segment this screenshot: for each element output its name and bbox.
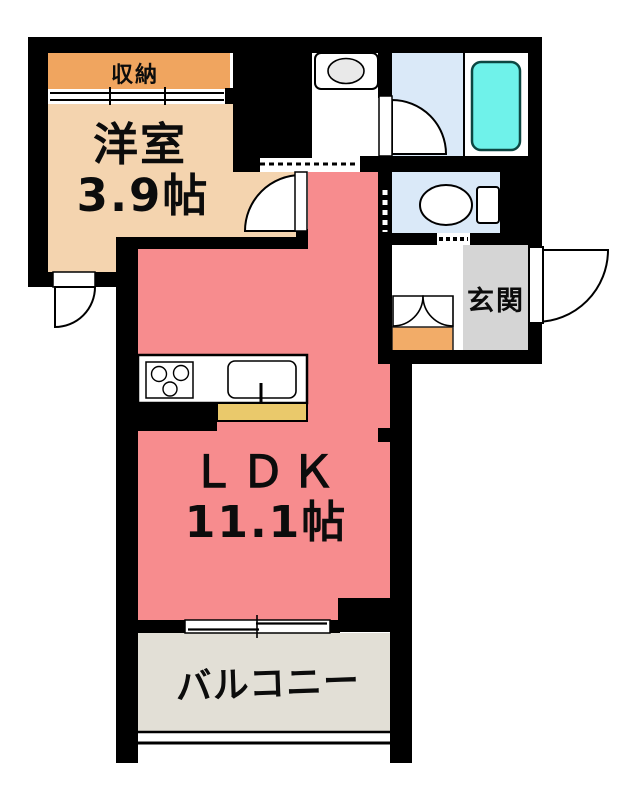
entry-door [529,247,608,323]
ldk-size-label: 11.1帖 [185,497,348,548]
wall-segment [28,272,53,287]
shoe-cabinet [392,327,453,352]
balcony-railing [138,732,390,743]
toilet-sliding-door [437,233,470,245]
ext-door-arc [55,287,95,327]
wall-segment [338,598,412,632]
entry-door-leaf [529,247,543,323]
toilet-icon [420,185,499,225]
entry-door-arc [536,250,608,322]
stove-burner [152,367,167,382]
bathroom-door-leaf [379,96,392,156]
wall-segment [378,172,392,352]
ext-door-leaf [53,272,95,287]
western-room-exterior-door [53,272,95,327]
wall-segment [500,156,528,245]
kitchen-wall-block [116,403,217,431]
floorplan-drawing: 収納 洋室 3.9帖 ＬＤＫ 11.1帖 玄関 バルコニー [0,0,643,800]
wall-segment [378,350,542,364]
closet-label: 収納 [111,62,159,88]
wall-segment [233,37,312,158]
wall-segment [95,272,116,287]
wall-segment [378,428,412,442]
balcony-label: バルコニー [175,661,361,708]
closet-sliding-door [48,87,225,105]
wall-segment [392,233,437,245]
washer-drum-icon [328,59,364,84]
western-room-door-leaf [295,172,307,231]
western-room-size-label: 3.9帖 [77,169,210,222]
kitchen-counter-front [217,403,307,421]
western-room-name-label: 洋室 [93,118,187,171]
entrance-label: 玄関 [467,285,525,317]
wall-segment [528,37,542,248]
closet-door-bg [48,89,225,104]
open-boundary-dashed [256,156,362,172]
room-ldk-arm [308,158,378,253]
toilet-bowl [420,185,472,225]
wall-segment [330,620,340,633]
wall-segment [138,620,185,633]
wall-segment [116,237,308,249]
wall-segment [378,53,392,98]
wall-segment [233,158,260,172]
wall-segment [390,363,412,763]
wall-segment [470,233,500,245]
room-western-lower [48,237,116,274]
toilet-tank [477,187,499,223]
wall-segment [116,237,138,763]
room-ldk [138,249,392,620]
bathtub-icon [472,62,520,150]
stove-burner [163,382,177,396]
washing-machine-pan [315,53,378,89]
stove-burner [174,366,189,381]
ldk-name-label: ＬＤＫ [191,447,341,498]
floorplan: 収納 洋室 3.9帖 ＬＤＫ 11.1帖 玄関 バルコニー [0,0,643,800]
wall-segment [225,88,235,104]
wall-segment [528,320,542,364]
wall-segment [28,37,48,287]
